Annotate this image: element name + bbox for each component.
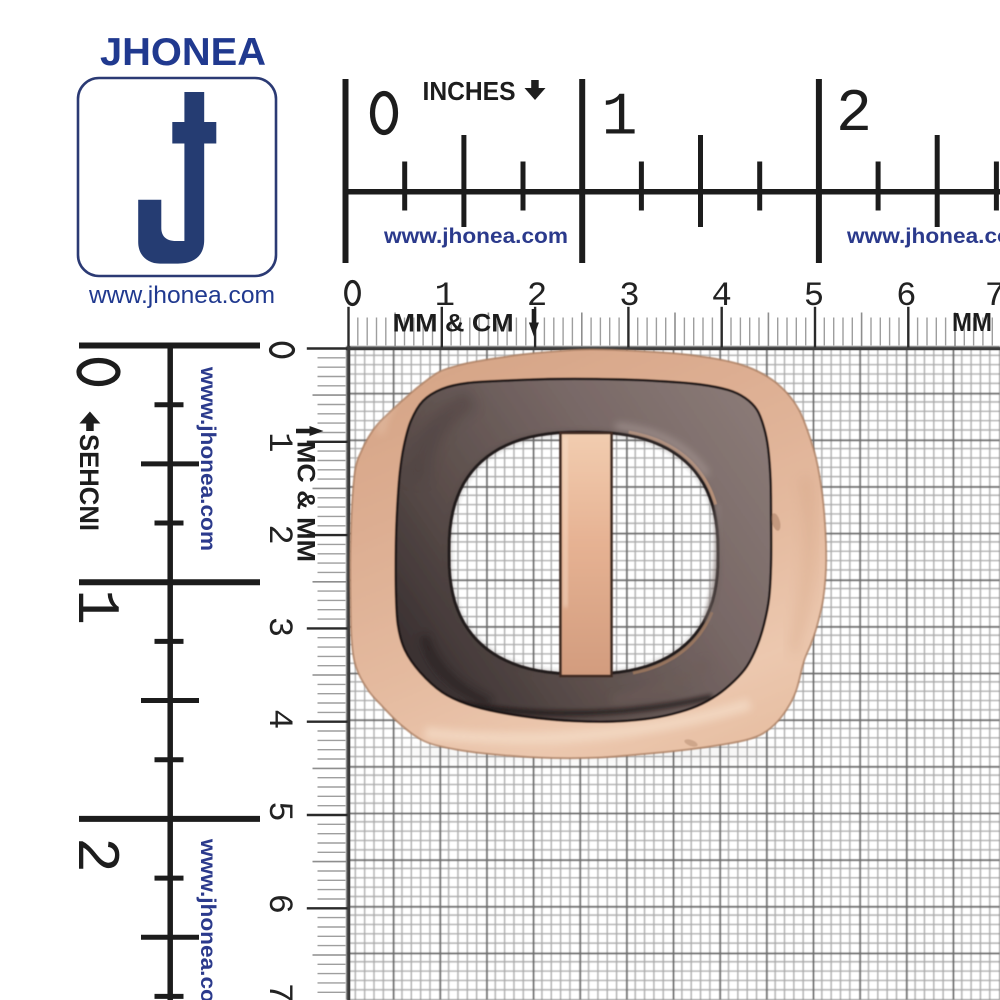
svg-text:3: 3 [619,278,639,316]
svg-text:1: 1 [601,85,637,153]
svg-text:www.jhonea.com: www.jhonea.com [846,225,1000,248]
svg-text:4: 4 [711,278,731,316]
svg-text:3: 3 [259,617,297,637]
svg-text:SEHCNI: SEHCNI [74,434,104,531]
svg-text:1: 1 [259,432,297,452]
svg-text:1: 1 [60,589,128,625]
svg-text:4: 4 [259,709,297,729]
svg-text:www.jhonea.com: www.jhonea.com [196,838,219,1000]
svg-text:2: 2 [836,81,872,149]
svg-text:2: 2 [60,837,128,873]
svg-text:MM: MM [952,307,992,337]
svg-text:www.jhonea.com: www.jhonea.com [88,282,275,309]
svg-text:www.jhonea.com: www.jhonea.com [196,366,219,551]
svg-text:5: 5 [804,278,824,316]
svg-text:www.jhonea.com: www.jhonea.com [383,225,568,248]
svg-text:6: 6 [896,278,916,316]
svg-text:MC & MM: MC & MM [292,441,320,562]
svg-text:JHONEA: JHONEA [100,31,266,74]
svg-text:MM & CM: MM & CM [393,310,514,338]
svg-text:2: 2 [527,278,547,316]
svg-text:5: 5 [259,801,297,821]
svg-text:2: 2 [259,524,297,544]
svg-text:7: 7 [259,983,297,1000]
svg-text:INCHES: INCHES [423,76,516,106]
svg-text:6: 6 [259,894,297,914]
